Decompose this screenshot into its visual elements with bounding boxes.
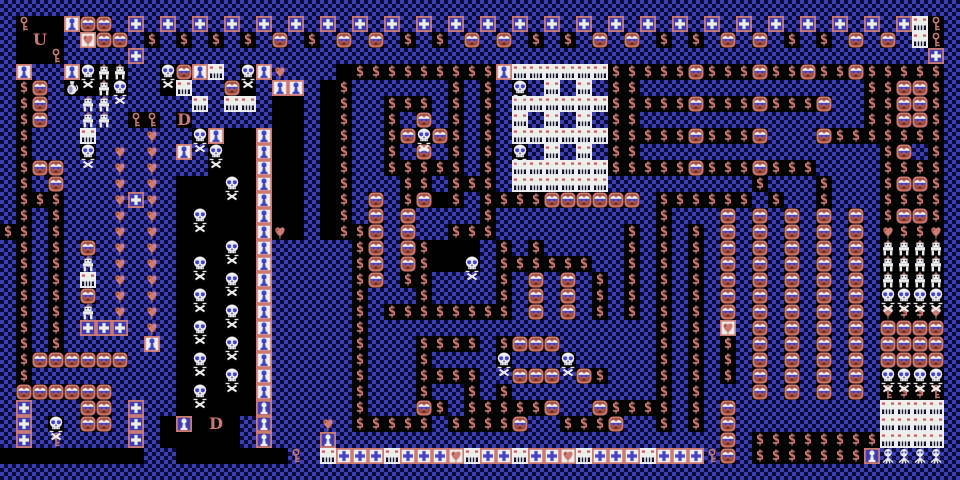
- floor-tile: [640, 320, 656, 336]
- floor-tile: [496, 96, 512, 112]
- block-monster-tile: [544, 144, 560, 160]
- floor-tile: [384, 288, 400, 304]
- floor-tile: [704, 32, 720, 48]
- floor-tile: [912, 464, 928, 480]
- floor-tile: [224, 32, 240, 48]
- floor-tile: [944, 432, 960, 448]
- gnome-tile: [80, 304, 96, 320]
- floor-tile: [848, 80, 864, 96]
- treasure-tile: $: [688, 192, 704, 208]
- floor-tile: [304, 144, 320, 160]
- floor-tile: [32, 464, 48, 480]
- floor-tile: [832, 240, 848, 256]
- treasure-tile: $: [672, 160, 688, 176]
- heart-on-white-tile: [560, 448, 576, 464]
- floor-tile: [912, 48, 928, 64]
- heart-tile: [144, 176, 160, 192]
- floor-tile: [176, 0, 192, 16]
- floor-tile: [800, 224, 816, 240]
- floor-tile: [96, 240, 112, 256]
- floor-tile: [192, 112, 208, 128]
- gnome-on-void-tile: [912, 272, 928, 288]
- treasure-tile: $: [896, 160, 912, 176]
- monster-face-tile: [848, 320, 864, 336]
- floor-tile: [496, 208, 512, 224]
- floor-tile: [544, 384, 560, 400]
- floor-tile: [576, 304, 592, 320]
- void-tile: [224, 144, 240, 160]
- void-tile: [48, 32, 64, 48]
- floor-tile: [816, 400, 832, 416]
- floor-tile: [0, 48, 16, 64]
- cross-item-tile: [544, 16, 560, 32]
- treasure-tile: $: [720, 192, 736, 208]
- floor-tile: [96, 272, 112, 288]
- floor-tile: [720, 144, 736, 160]
- skull-tile: [896, 368, 912, 384]
- floor-tile: [544, 464, 560, 480]
- block-monster-tile: [576, 96, 592, 112]
- floor-tile: [576, 384, 592, 400]
- treasure-tile: $: [448, 80, 464, 96]
- key-on-void-tile: [144, 112, 160, 128]
- treasure-tile: $: [720, 160, 736, 176]
- void-tile: [64, 448, 80, 464]
- void-tile: [208, 192, 224, 208]
- floor-tile: [112, 128, 128, 144]
- floor-tile: [352, 144, 368, 160]
- floor-tile: [432, 48, 448, 64]
- floor-tile: [800, 240, 816, 256]
- treasure-tile: $: [880, 144, 896, 160]
- floor-tile: [448, 0, 464, 16]
- floor-tile: [384, 240, 400, 256]
- floor-tile: [640, 144, 656, 160]
- skull-tile: [208, 144, 224, 160]
- void-tile: [336, 64, 352, 80]
- floor-tile: [368, 16, 384, 32]
- floor-tile: [672, 240, 688, 256]
- treasure-tile: $: [352, 384, 368, 400]
- floor-tile: [688, 176, 704, 192]
- monster-face-tile: [64, 352, 80, 368]
- floor-tile: [864, 240, 880, 256]
- floor-tile: [816, 160, 832, 176]
- cross-item-tile: [480, 16, 496, 32]
- monster-face-tile: [896, 336, 912, 352]
- floor-tile: [352, 48, 368, 64]
- floor-tile: [784, 176, 800, 192]
- floor-tile: [576, 464, 592, 480]
- monster-face-tile: [544, 400, 560, 416]
- monster-face-tile: [32, 96, 48, 112]
- game-map[interactable]: U $$$$ $ $$ $$: [0, 0, 960, 480]
- floor-tile: [432, 384, 448, 400]
- floor-tile: [368, 160, 384, 176]
- floor-tile: [496, 176, 512, 192]
- floor-tile: [848, 96, 864, 112]
- floor-tile: [784, 0, 800, 16]
- treasure-tile: $: [656, 384, 672, 400]
- block-monster-tile: [576, 160, 592, 176]
- block-monster-tile: [528, 128, 544, 144]
- floor-tile: [64, 432, 80, 448]
- floor-tile: [656, 464, 672, 480]
- floor-tile: [864, 160, 880, 176]
- floor-tile: [752, 48, 768, 64]
- floor-tile: [480, 464, 496, 480]
- treasure-tile: $: [864, 432, 880, 448]
- floor-tile: [800, 144, 816, 160]
- floor-tile: [128, 464, 144, 480]
- floor-tile: [464, 48, 480, 64]
- heart-tile: [144, 320, 160, 336]
- treasure-tile: $: [592, 368, 608, 384]
- heart-tile: [112, 176, 128, 192]
- statue-white-tile: [256, 208, 272, 224]
- treasure-tile: $: [672, 96, 688, 112]
- treasure-tile: $: [16, 208, 32, 224]
- monster-face-tile: [432, 128, 448, 144]
- spider-tile: [896, 448, 912, 464]
- floor-tile: [384, 464, 400, 480]
- floor-tile: [96, 288, 112, 304]
- treasure-tile: $: [352, 64, 368, 80]
- treasure-tile: $: [464, 400, 480, 416]
- floor-tile: [816, 464, 832, 480]
- floor-tile: [480, 352, 496, 368]
- skull-tile: [224, 304, 240, 320]
- void-tile: [96, 448, 112, 464]
- statue-white-tile: [144, 336, 160, 352]
- floor-tile: [128, 288, 144, 304]
- statue-blue-tile: [256, 416, 272, 432]
- floor-tile: [112, 0, 128, 16]
- floor-tile: [288, 304, 304, 320]
- block-monster-tile: [912, 416, 928, 432]
- block-monster-tile: [464, 448, 480, 464]
- gnome-on-void-tile: [896, 272, 912, 288]
- void-tile: [240, 368, 256, 384]
- floor-tile: [832, 304, 848, 320]
- floor-tile: [96, 176, 112, 192]
- block-monster-tile: [176, 80, 192, 96]
- floor-tile: [400, 464, 416, 480]
- floor-tile: [304, 352, 320, 368]
- floor-tile: [496, 48, 512, 64]
- heart-on-void-tile: [880, 224, 896, 240]
- floor-tile: [736, 352, 752, 368]
- floor-tile: [816, 48, 832, 64]
- floor-tile: [368, 352, 384, 368]
- floor-tile: [432, 288, 448, 304]
- floor-tile: [80, 224, 96, 240]
- floor-tile: [272, 368, 288, 384]
- floor-tile: [224, 64, 240, 80]
- floor-tile: [320, 240, 336, 256]
- void-tile: [240, 272, 256, 288]
- floor-tile: [512, 32, 528, 48]
- floor-tile: [112, 464, 128, 480]
- floor-tile: [736, 320, 752, 336]
- statue-white-tile: [256, 320, 272, 336]
- skull-tile: [896, 288, 912, 304]
- floor-tile: [336, 320, 352, 336]
- floor-tile: [304, 128, 320, 144]
- floor-tile: [144, 0, 160, 16]
- cross-item-light-tile: [672, 448, 688, 464]
- monster-face-tile: [752, 256, 768, 272]
- heart-tile: [144, 144, 160, 160]
- floor-tile: [160, 448, 176, 464]
- floor-tile: [176, 160, 192, 176]
- floor-tile: [688, 432, 704, 448]
- floor-tile: [144, 384, 160, 400]
- floor-tile: [0, 240, 16, 256]
- monster-face-tile: [592, 32, 608, 48]
- treasure-tile: $: [448, 144, 464, 160]
- floor-tile: [512, 272, 528, 288]
- treasure-tile: $: [480, 176, 496, 192]
- treasure-tile: $: [384, 64, 400, 80]
- floor-tile: [464, 352, 480, 368]
- floor-tile: [224, 112, 240, 128]
- block-monster-tile: [560, 160, 576, 176]
- void-tile: [240, 208, 256, 224]
- treasure-tile: $: [16, 128, 32, 144]
- floor-tile: [560, 0, 576, 16]
- floor-tile: [160, 272, 176, 288]
- floor-tile: [720, 80, 736, 96]
- floor-tile: [672, 224, 688, 240]
- block-monster-tile: [512, 128, 528, 144]
- block-monster-tile: [576, 176, 592, 192]
- monster-face-tile: [400, 240, 416, 256]
- monster-face-tile: [48, 160, 64, 176]
- floor-tile: [400, 80, 416, 96]
- cross-item-tile: [128, 192, 144, 208]
- block-monster-tile: [544, 176, 560, 192]
- monster-face-tile: [368, 240, 384, 256]
- key-on-void-tile: [48, 48, 64, 64]
- floor-tile: [448, 400, 464, 416]
- treasure-tile: $: [816, 192, 832, 208]
- floor-tile: [112, 400, 128, 416]
- skull-tile: [48, 416, 64, 432]
- floor-tile: [144, 48, 160, 64]
- treasure-tile: $: [16, 256, 32, 272]
- skull-tile: [928, 288, 944, 304]
- floor-tile: [784, 48, 800, 64]
- floor-tile: [736, 384, 752, 400]
- monster-face-tile: [752, 384, 768, 400]
- floor-tile: [736, 368, 752, 384]
- floor-tile: [304, 176, 320, 192]
- floor-tile: [912, 0, 928, 16]
- block-monster-tile: [240, 96, 256, 112]
- floor-tile: [464, 160, 480, 176]
- block-monster-tile: [224, 96, 240, 112]
- floor-tile: [304, 0, 320, 16]
- floor-tile: [736, 448, 752, 464]
- floor-tile: [784, 192, 800, 208]
- treasure-tile: $: [656, 416, 672, 432]
- floor-tile: [0, 288, 16, 304]
- floor-tile: [128, 368, 144, 384]
- monster-face-tile: [720, 272, 736, 288]
- monster-face-tile: [880, 352, 896, 368]
- treasure-tile: $: [656, 320, 672, 336]
- floor-tile: [368, 336, 384, 352]
- floor-tile: [864, 416, 880, 432]
- floor-tile: [336, 48, 352, 64]
- monster-face-tile: [848, 368, 864, 384]
- floor-tile: [208, 48, 224, 64]
- treasure-tile: $: [304, 32, 320, 48]
- monster-face-tile: [96, 32, 112, 48]
- floor-tile: [816, 80, 832, 96]
- void-tile: [192, 192, 208, 208]
- monster-face-tile: [688, 64, 704, 80]
- treasure-tile: $: [608, 400, 624, 416]
- void-tile: [208, 320, 224, 336]
- monster-face-tile: [896, 144, 912, 160]
- floor-tile: [480, 272, 496, 288]
- floor-tile: [624, 16, 640, 32]
- spider-tile: [928, 448, 944, 464]
- void-tile: [192, 176, 208, 192]
- void-tile: [176, 288, 192, 304]
- floor-tile: [0, 384, 16, 400]
- floor-tile: [352, 176, 368, 192]
- skull-tile: [560, 352, 576, 368]
- floor-tile: [272, 384, 288, 400]
- floor-tile: [256, 464, 272, 480]
- treasure-tile: $: [864, 64, 880, 80]
- floor-tile: [464, 80, 480, 96]
- cross-item-light-tile: [592, 448, 608, 464]
- treasure-tile: $: [352, 320, 368, 336]
- floor-tile: [768, 112, 784, 128]
- monster-face-tile: [752, 208, 768, 224]
- cross-item-tile: [832, 16, 848, 32]
- floor-tile: [528, 416, 544, 432]
- floor-tile: [128, 80, 144, 96]
- floor-tile: [240, 416, 256, 432]
- treasure-tile: $: [592, 416, 608, 432]
- floor-tile: [304, 64, 320, 80]
- monster-face-tile: [896, 320, 912, 336]
- monster-face-tile: [224, 80, 240, 96]
- block-monster-tile: [640, 448, 656, 464]
- treasure-tile: $: [656, 208, 672, 224]
- treasure-tile: $: [624, 96, 640, 112]
- floor-tile: [0, 336, 16, 352]
- floor-tile: [528, 352, 544, 368]
- floor-tile: [128, 96, 144, 112]
- treasure-tile: $: [400, 176, 416, 192]
- floor-tile: [944, 448, 960, 464]
- cross-item-tile: [192, 16, 208, 32]
- cross-item-light-tile: [432, 448, 448, 464]
- block-monster-tile: [592, 128, 608, 144]
- floor-tile: [304, 416, 320, 432]
- floor-tile: [224, 464, 240, 480]
- floor-tile: [848, 48, 864, 64]
- floor-tile: [176, 128, 192, 144]
- monster-face-tile: [784, 240, 800, 256]
- floor-tile: [480, 368, 496, 384]
- floor-tile: [240, 112, 256, 128]
- monster-face-tile: [816, 96, 832, 112]
- treasure-tile: $: [896, 64, 912, 80]
- floor-tile: [400, 144, 416, 160]
- floor-tile: [656, 144, 672, 160]
- floor-tile: [336, 240, 352, 256]
- monster-face-tile: [112, 352, 128, 368]
- block-monster-tile: [528, 96, 544, 112]
- monster-face-tile: [784, 384, 800, 400]
- key-tile: [704, 448, 720, 464]
- floor-tile: [864, 320, 880, 336]
- floor-tile: [64, 112, 80, 128]
- heart-tile: [144, 160, 160, 176]
- heart-tile: [112, 240, 128, 256]
- floor-tile: [624, 432, 640, 448]
- floor-tile: [736, 112, 752, 128]
- floor-tile: [96, 208, 112, 224]
- heart-tile: [112, 288, 128, 304]
- floor-tile: [384, 0, 400, 16]
- floor-tile: [592, 352, 608, 368]
- floor-tile: [144, 80, 160, 96]
- floor-tile: [272, 464, 288, 480]
- treasure-tile: $: [336, 192, 352, 208]
- heart-tile: [144, 208, 160, 224]
- statue-blue-tile: [176, 416, 192, 432]
- treasure-tile: $: [848, 448, 864, 464]
- floor-tile: [48, 368, 64, 384]
- floor-tile: [0, 64, 16, 80]
- skull-tile: [512, 144, 528, 160]
- floor-tile: [800, 336, 816, 352]
- floor-tile: [368, 464, 384, 480]
- treasure-tile: $: [384, 128, 400, 144]
- treasure-tile: $: [448, 112, 464, 128]
- floor-tile: [464, 432, 480, 448]
- floor-tile: [176, 48, 192, 64]
- floor-tile: [768, 352, 784, 368]
- floor-tile: [800, 416, 816, 432]
- treasure-tile: $: [384, 416, 400, 432]
- floor-tile: [704, 176, 720, 192]
- floor-tile: [368, 368, 384, 384]
- floor-tile: [896, 48, 912, 64]
- heart-tile: [144, 288, 160, 304]
- treasure-tile: $: [656, 128, 672, 144]
- floor-tile: [336, 16, 352, 32]
- floor-tile: [64, 256, 80, 272]
- floor-tile: [880, 48, 896, 64]
- floor-tile: [160, 288, 176, 304]
- monster-face-tile: [848, 224, 864, 240]
- floor-tile: [768, 0, 784, 16]
- floor-tile: [704, 384, 720, 400]
- floor-tile: [160, 384, 176, 400]
- void-tile: [176, 320, 192, 336]
- treasure-tile: $: [416, 384, 432, 400]
- heart-tile: [112, 160, 128, 176]
